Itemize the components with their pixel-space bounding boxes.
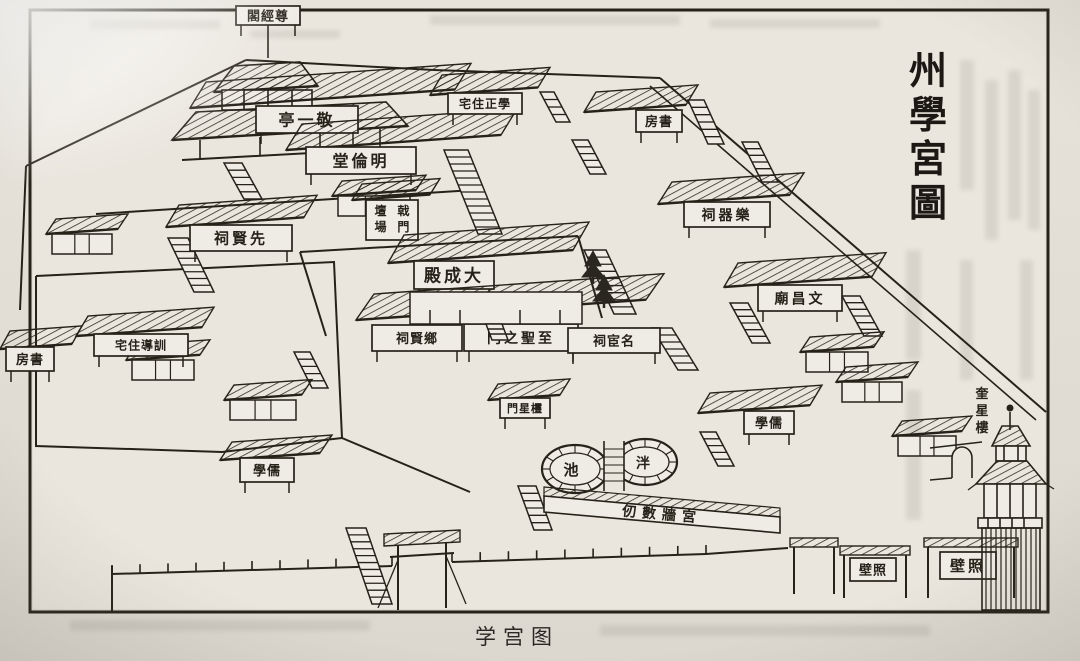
plaque-text-wenchang-miao: 廟昌文 (775, 290, 826, 307)
plaque-text-yueqi-ci: 祠器樂 (702, 207, 753, 224)
plaque-text-xuezheng-zhuzhai: 宅住正學 (459, 96, 511, 111)
plaque-text-xiangxian-ci: 祠賢鄉 (396, 331, 438, 346)
plaque-text-ruxue-right: 學儒 (755, 415, 783, 430)
plaque-text-dachengdian: 殿成大 (423, 265, 484, 285)
plaque-text-lingxing-men: 門星欞 (507, 401, 543, 415)
plaque-text-zunjingge-plaque: 閣經尊 (247, 8, 289, 23)
plaque-text-mingluntang: 堂倫明 (332, 152, 389, 171)
plaque-text-xundao-zhuzhai: 宅住導訓 (115, 338, 167, 353)
scanned-book-page: 閣經尊亭一敬堂倫明宅住正學房書祠賢先戟門壇場殿成大祠器樂祠賢鄉門之聖至祠宦名廟昌… (0, 0, 1080, 661)
plaque-text-zhaobi-2: 壁照 (950, 557, 986, 575)
map-title-char-3: 圖 (909, 183, 947, 225)
plaque-text-minghuan-ci: 祠宦名 (593, 333, 635, 348)
plaque-text-ruxue-left: 學儒 (253, 463, 281, 478)
pond-char-right: 泮 (636, 455, 650, 472)
figure-caption: 学宫图 (475, 625, 559, 649)
kuixinglou-label: 奎星樓 (974, 386, 989, 435)
map-title-char-0: 州 (909, 51, 947, 93)
map-title-char-1: 學 (909, 95, 947, 137)
map-title-char-2: 宮 (909, 139, 947, 181)
plaque-text-xianxian-ci: 祠賢先 (214, 230, 268, 248)
plaque-text-shufang-left: 房書 (16, 352, 44, 367)
plaque-text-zhaobi-1: 壁照 (859, 562, 887, 577)
vertical-labels: 奎星樓 (974, 386, 989, 435)
plaque-text-shufang-right: 房書 (645, 114, 673, 129)
pond-char-left: 池 (563, 461, 578, 479)
xuegong-map-figure: 閣經尊亭一敬堂倫明宅住正學房書祠賢先戟門壇場殿成大祠器樂祠賢鄉門之聖至祠宦名廟昌… (0, 0, 1080, 661)
